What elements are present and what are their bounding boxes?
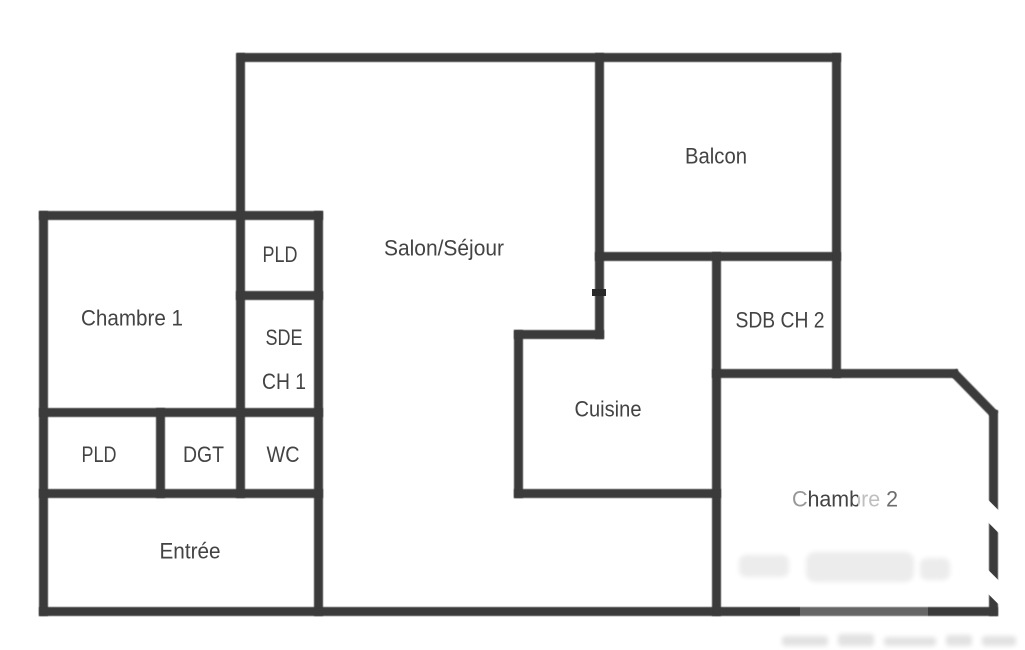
svg-text:Chambre 1: Chambre 1 [81, 306, 183, 331]
svg-text:CH 1: CH 1 [262, 369, 306, 394]
svg-text:PLD: PLD [82, 442, 117, 467]
svg-text:WC: WC [267, 442, 300, 467]
svg-text:DGT: DGT [183, 442, 224, 467]
svg-text:Balcon: Balcon [685, 144, 747, 169]
svg-text:SDB CH 2: SDB CH 2 [736, 308, 825, 333]
svg-text:Entrée: Entrée [160, 539, 221, 564]
svg-text:SDE: SDE [266, 325, 303, 350]
svg-text:Salon/Séjour: Salon/Séjour [384, 236, 504, 261]
svg-text:PLD: PLD [263, 242, 298, 267]
svg-text:Cuisine: Cuisine [575, 397, 642, 422]
